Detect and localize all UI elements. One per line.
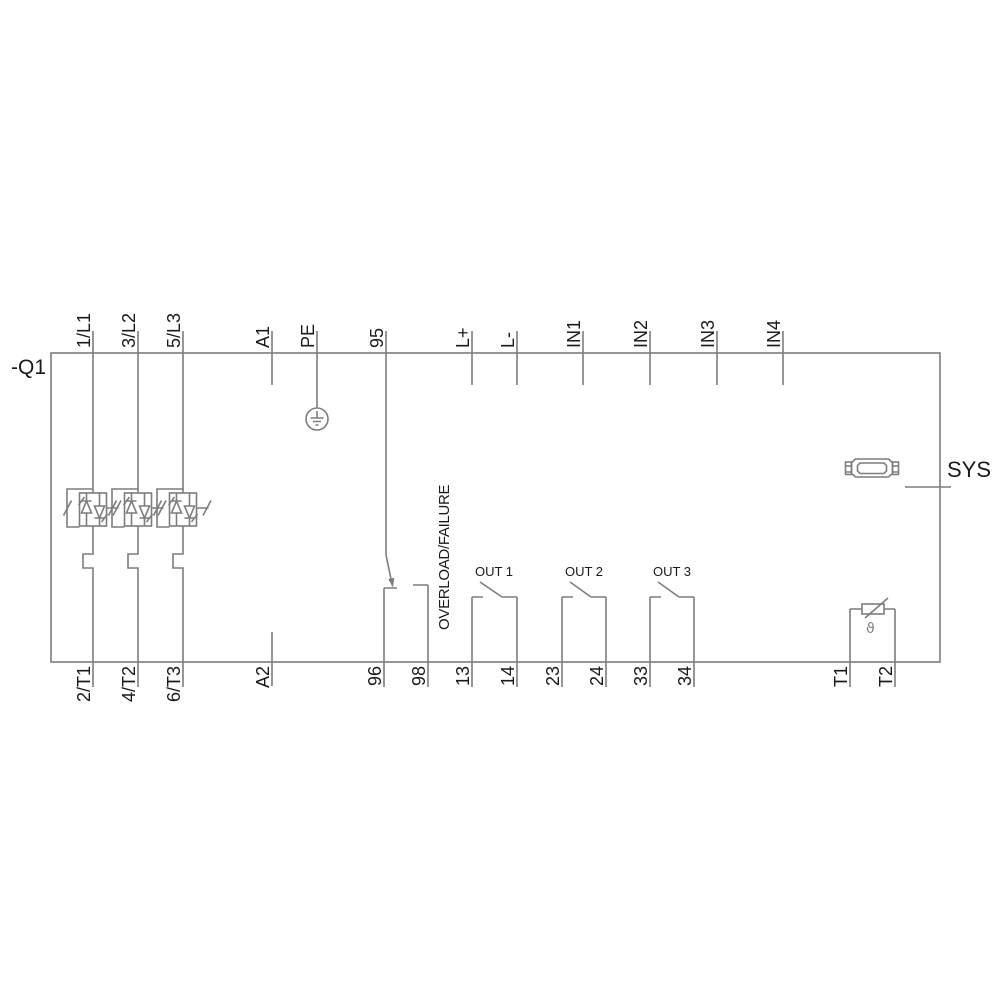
terminal-label-IN2: IN2 [631, 320, 651, 348]
terminal-label-1L1: 1/L1 [74, 313, 94, 348]
out3-label: OUT 3 [653, 564, 691, 579]
terminal-label-A1: A1 [253, 326, 273, 348]
overload-failure-label: OVERLOAD/FAILURE [436, 484, 453, 630]
terminal-label-IN4: IN4 [764, 320, 784, 348]
sys-connector-icon [846, 459, 899, 477]
terminal-label-23: 23 [543, 666, 563, 686]
out1-label: OUT 1 [475, 564, 513, 579]
terminal-label-Lplus: L+ [453, 327, 473, 348]
bottom-terminal-labels: 2/T1 4/T2 6/T3 A2 96 98 13 14 23 24 33 3… [74, 666, 896, 702]
terminal-label-98: 98 [409, 666, 429, 686]
terminal-label-T2: T2 [876, 666, 896, 687]
softstarter-wiring-diagram: -Q1 [0, 0, 1000, 1000]
terminal-label-5L3: 5/L3 [164, 313, 184, 348]
terminal-label-A2: A2 [253, 666, 273, 688]
terminal-label-3L2: 3/L2 [119, 313, 139, 348]
terminal-label-T1: T1 [831, 666, 851, 687]
sys-label: SYS [947, 457, 991, 482]
top-terminal-lines [272, 331, 783, 555]
terminal-label-IN3: IN3 [698, 320, 718, 348]
terminal-label-13: 13 [453, 666, 473, 686]
terminal-label-33: 33 [631, 666, 651, 686]
terminal-label-PE: PE [298, 324, 318, 348]
terminal-label-34: 34 [675, 666, 695, 686]
terminal-label-96: 96 [365, 666, 385, 686]
terminal-label-6T3: 6/T3 [164, 666, 184, 702]
device-tag-label: -Q1 [11, 356, 46, 379]
out2-label: OUT 2 [565, 564, 603, 579]
terminal-label-95: 95 [367, 328, 387, 348]
theta-symbol: ϑ [866, 621, 875, 637]
terminal-label-2T1: 2/T1 [74, 666, 94, 702]
terminal-label-4T2: 4/T2 [119, 666, 139, 702]
pe-ground-icon [306, 408, 328, 430]
diagram-canvas: -Q1 [0, 0, 1000, 1000]
terminal-label-Lminus: L- [498, 332, 518, 348]
top-terminal-labels: 1/L1 3/L2 5/L3 A1 PE 95 L+ L- IN1 IN2 IN… [74, 313, 784, 348]
terminal-label-24: 24 [587, 666, 607, 686]
terminal-label-14: 14 [498, 666, 518, 686]
terminal-label-IN1: IN1 [564, 320, 584, 348]
